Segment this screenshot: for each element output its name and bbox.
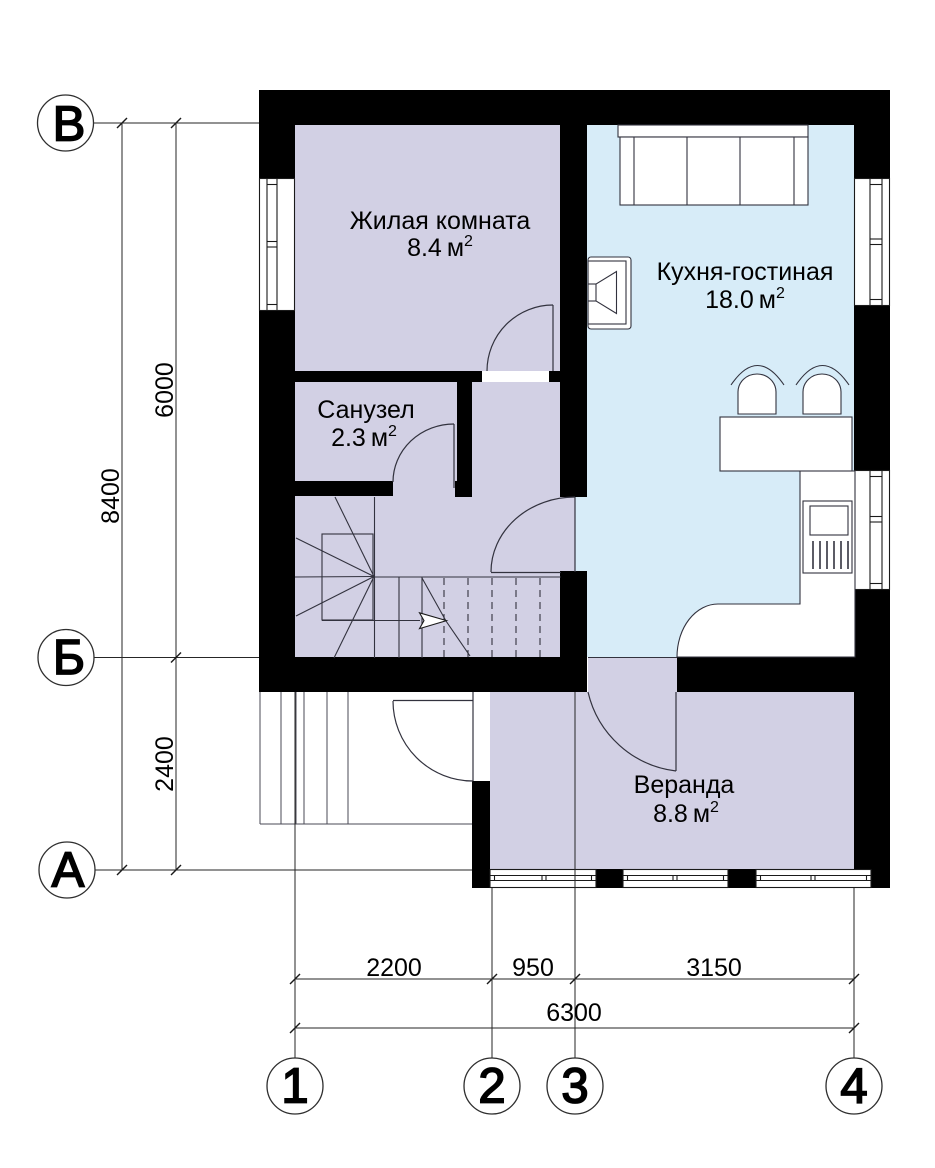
svg-text:Кухня-гостиная: Кухня-гостиная — [657, 258, 834, 286]
svg-text:2: 2 — [478, 1060, 505, 1114]
svg-text:4: 4 — [840, 1060, 867, 1114]
svg-text:18.0 м2: 18.0 м2 — [705, 285, 785, 314]
svg-text:6000: 6000 — [151, 362, 179, 418]
svg-text:3: 3 — [561, 1060, 588, 1114]
svg-text:2200: 2200 — [366, 954, 422, 982]
svg-text:3150: 3150 — [686, 954, 742, 982]
svg-text:1: 1 — [281, 1060, 308, 1114]
svg-text:8400: 8400 — [97, 468, 125, 524]
svg-text:Жилая комната: Жилая комната — [350, 207, 531, 235]
svg-text:Веранда: Веранда — [634, 771, 735, 799]
svg-text:А: А — [52, 844, 85, 898]
svg-text:2400: 2400 — [151, 736, 179, 792]
svg-text:Б: Б — [53, 631, 85, 685]
svg-text:8.4 м2: 8.4 м2 — [407, 233, 473, 262]
svg-text:8.8 м2: 8.8 м2 — [653, 799, 719, 828]
svg-text:2.3 м2: 2.3 м2 — [331, 423, 397, 452]
svg-text:950: 950 — [512, 954, 554, 982]
svg-text:В: В — [53, 98, 86, 152]
svg-text:6300: 6300 — [546, 999, 602, 1027]
svg-text:Санузел: Санузел — [317, 396, 414, 424]
